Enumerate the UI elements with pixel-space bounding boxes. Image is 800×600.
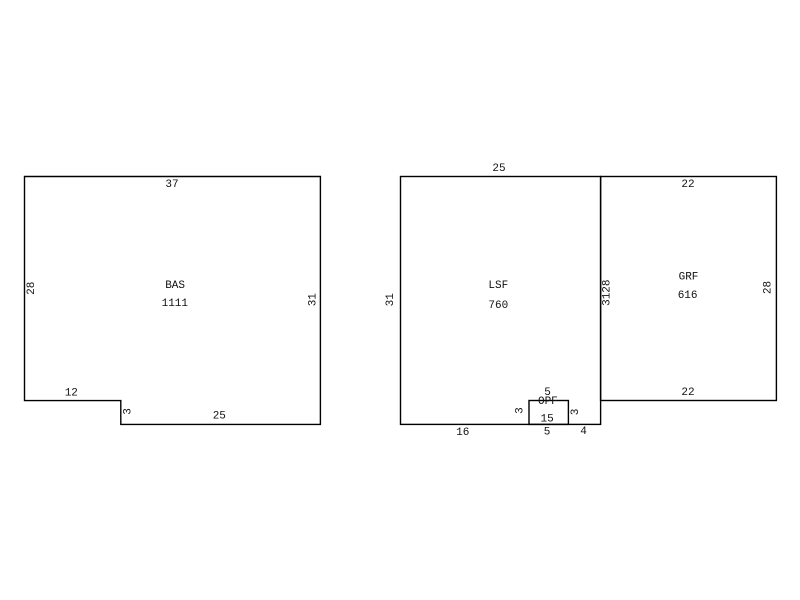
svg-text:3: 3: [515, 407, 527, 414]
svg-text:BAS: BAS: [165, 280, 185, 292]
svg-text:37: 37: [165, 179, 178, 191]
svg-text:OPF: OPF: [538, 396, 558, 408]
svg-text:12: 12: [65, 387, 78, 399]
svg-text:3128: 3128: [602, 279, 614, 305]
svg-text:760: 760: [488, 300, 508, 312]
svg-text:28: 28: [763, 281, 775, 294]
svg-text:4: 4: [580, 426, 587, 438]
svg-text:3: 3: [570, 409, 582, 416]
svg-text:25: 25: [213, 410, 226, 422]
svg-text:15: 15: [540, 413, 553, 425]
svg-text:LSF: LSF: [488, 280, 508, 292]
svg-text:5: 5: [544, 426, 551, 438]
svg-text:3: 3: [123, 408, 135, 415]
svg-text:31: 31: [385, 293, 397, 307]
svg-text:1111: 1111: [162, 298, 189, 310]
svg-text:16: 16: [456, 427, 469, 439]
svg-text:28: 28: [26, 282, 38, 295]
svg-text:22: 22: [681, 179, 694, 191]
svg-text:22: 22: [681, 387, 694, 399]
svg-text:31: 31: [307, 293, 319, 307]
svg-text:25: 25: [492, 163, 505, 175]
svg-text:616: 616: [678, 290, 698, 302]
svg-text:GRF: GRF: [679, 272, 699, 284]
